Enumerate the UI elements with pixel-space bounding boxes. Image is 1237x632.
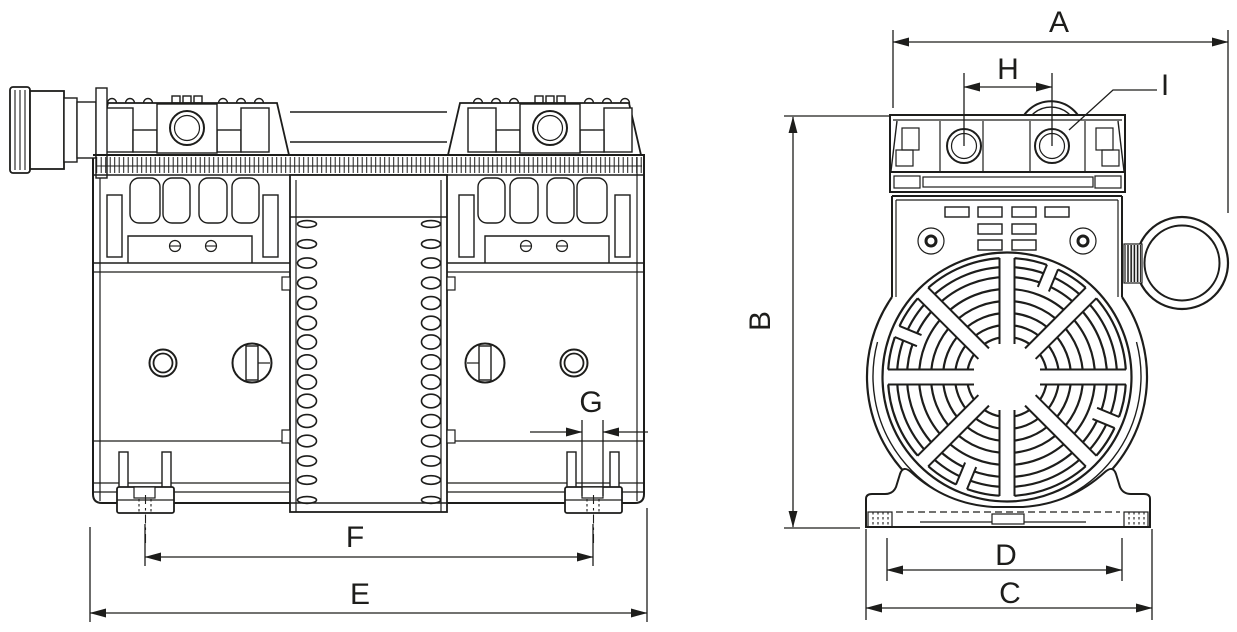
dim-label-i: I (1161, 69, 1169, 102)
dim-label-h: H (997, 53, 1019, 86)
dimension-e: E (90, 508, 647, 622)
dim-label-e: E (350, 578, 370, 611)
pump-head-front (890, 115, 1125, 192)
technical-drawing-page: G F E A H I (0, 0, 1237, 632)
dimension-f: F (145, 521, 593, 566)
housing-vent-slots (945, 207, 1069, 250)
housing-screw-left (918, 228, 944, 254)
cylinder-head-left (96, 103, 289, 155)
dim-label-a: A (1049, 6, 1069, 39)
housing-screw-right (1070, 228, 1096, 254)
fan-grille (883, 253, 1132, 502)
carry-ring (1124, 217, 1228, 309)
dimension-d: D (887, 538, 1122, 581)
pump-dimension-drawing: G F E A H I (0, 0, 1237, 632)
dim-label-d: D (995, 539, 1017, 572)
power-connector (10, 87, 96, 173)
grille-ribs (886, 256, 1128, 498)
gasket-band (93, 155, 644, 175)
dim-label-c: C (999, 577, 1021, 610)
dim-label-g: G (579, 386, 602, 419)
dimension-b: B (744, 116, 889, 528)
side-view (10, 87, 644, 545)
front-view (866, 101, 1228, 527)
cylinder-head-right (448, 103, 641, 155)
dim-label-f: F (346, 521, 364, 554)
dim-label-b: B (744, 311, 777, 331)
motor-column (282, 175, 455, 512)
